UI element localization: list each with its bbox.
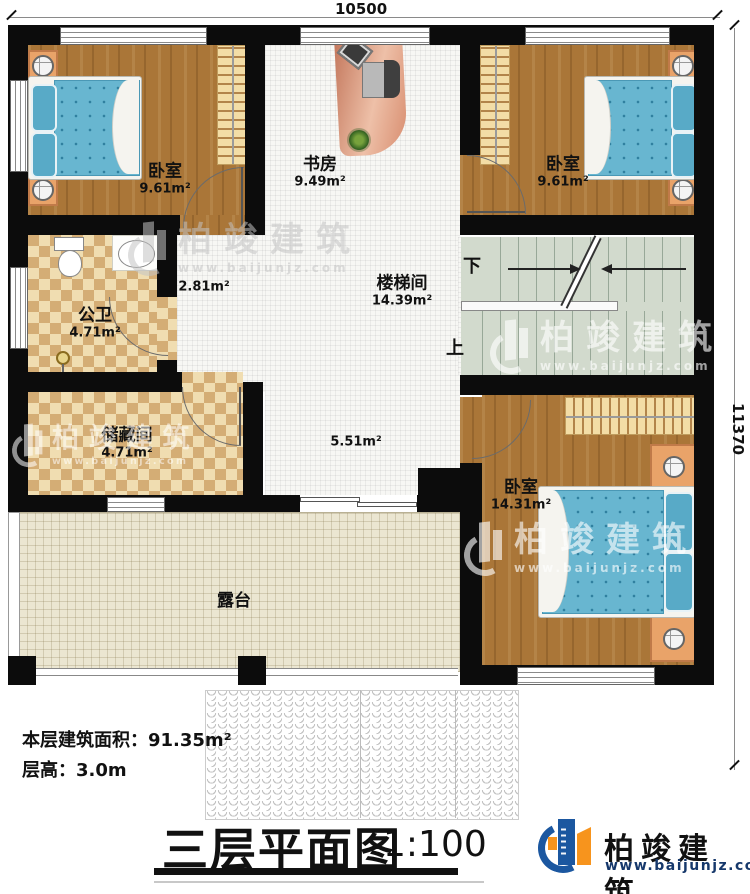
- room-label-hall: 5.51m²: [330, 434, 381, 449]
- dimension-tick: [712, 10, 723, 21]
- terrace-post: [238, 656, 266, 685]
- lamp-icon: [672, 179, 694, 201]
- room-label-bedroom-tr: 卧室 9.61m²: [537, 154, 588, 189]
- wall: [157, 235, 177, 297]
- lower-roof-tiles: [205, 690, 519, 820]
- floor-height-text: 层高：3.0m: [22, 756, 127, 782]
- window: [107, 497, 165, 512]
- window: [300, 27, 430, 45]
- pillow: [31, 84, 57, 132]
- nightstand: [650, 616, 698, 662]
- room-label-bedroom-tl: 卧室 9.61m²: [139, 161, 190, 196]
- room-name: 公卫: [69, 305, 120, 325]
- room-label-bedroom-br: 卧室 14.31m²: [491, 477, 551, 512]
- window: [525, 27, 670, 45]
- wall: [243, 495, 300, 512]
- room-label-stairwell: 楼梯间 14.39m²: [372, 273, 432, 308]
- room-label-storage: 储藏间 4.71m²: [101, 425, 152, 460]
- plant-icon: [349, 130, 369, 150]
- room-label-study: 书房 9.49m²: [294, 154, 345, 189]
- title-underline-thin: [154, 881, 484, 883]
- room-area: 9.61m²: [537, 174, 588, 189]
- stairs-down-label: 下: [463, 252, 481, 278]
- dimension-height: 11370: [729, 403, 747, 455]
- wall: [8, 372, 182, 392]
- stairs-direction-line: [508, 268, 572, 270]
- wall: [460, 45, 480, 155]
- room-name: 卧室: [537, 154, 588, 174]
- window: [517, 667, 655, 685]
- door-leaf: [241, 167, 243, 227]
- wardrobe: [565, 397, 696, 435]
- pillow: [31, 132, 57, 178]
- floor-area-text: 本层建筑面积：91.35m²: [22, 726, 232, 752]
- room-area: 14.39m²: [372, 293, 432, 308]
- room-area: 9.49m²: [294, 174, 345, 189]
- door-leaf: [239, 387, 241, 445]
- room-name: 楼梯间: [372, 273, 432, 293]
- roof-seam-line: [360, 690, 361, 818]
- sliding-door: [357, 502, 417, 507]
- lamp-icon: [32, 55, 54, 77]
- nightstand: [650, 444, 698, 490]
- window: [10, 267, 28, 349]
- room-label-bathroom: 公卫 4.71m²: [69, 305, 120, 340]
- room-area: 4.71m²: [69, 325, 120, 340]
- lamp-icon: [663, 628, 685, 650]
- floor-plan-canvas: 卧室 9.61m² 书房 9.49m² 卧室 9.61m² 公卫 4.71m² …: [0, 0, 750, 894]
- terrace-post: [8, 656, 36, 685]
- room-area: 5.51m²: [330, 434, 381, 449]
- window: [60, 27, 207, 45]
- stairs-arrow-icon: [570, 264, 581, 274]
- logo-building-icon: [548, 837, 557, 850]
- room-name: 书房: [294, 154, 345, 174]
- brand-url: www.baijunjz.com: [605, 858, 750, 874]
- pillow: [664, 552, 694, 612]
- lamp-icon: [663, 456, 685, 478]
- title-scale: 1:100: [383, 824, 487, 865]
- window: [10, 80, 28, 172]
- lamp-icon: [32, 179, 54, 201]
- stairs-arrow-icon: [601, 264, 612, 274]
- wall: [460, 375, 714, 395]
- closet: [480, 45, 510, 165]
- floor-drain-icon: [56, 351, 70, 365]
- room-area: 4.71m²: [101, 445, 152, 460]
- room-area: 9.61m²: [139, 181, 190, 196]
- closet: [217, 45, 247, 165]
- room-label-terrace: 露台: [217, 591, 251, 611]
- brand-logo-icon: [536, 815, 598, 879]
- stairs-up-label: 上: [446, 334, 464, 360]
- dimension-width: 10500: [335, 0, 387, 18]
- sink-icon: [118, 240, 155, 268]
- title-underline: [154, 868, 458, 875]
- dimension-line-right: [734, 28, 735, 770]
- lamp-icon: [672, 55, 694, 77]
- wall: [243, 382, 263, 512]
- terrace-parapet: [8, 512, 20, 660]
- room-name: 露台: [217, 591, 251, 611]
- logo-building-icon: [558, 819, 575, 865]
- wall: [460, 215, 714, 235]
- wall: [694, 25, 714, 685]
- room-name: 卧室: [491, 477, 551, 497]
- wall: [417, 495, 460, 512]
- bed-blanket-fold: [112, 80, 139, 174]
- dimension-tick: [6, 10, 17, 21]
- stairs-lower-flight: [465, 311, 694, 375]
- door-leaf: [467, 211, 525, 213]
- wall: [8, 215, 180, 235]
- room-label-corridor: 2.81m²: [178, 279, 229, 294]
- office-chair-back: [384, 60, 400, 98]
- room-name: 卧室: [139, 161, 190, 181]
- room-area: 14.31m²: [491, 497, 551, 512]
- wall: [245, 45, 265, 235]
- roof-seam-line: [455, 690, 456, 818]
- stairs-direction-line: [612, 268, 686, 270]
- toilet-icon: [54, 237, 84, 251]
- sliding-door: [300, 497, 360, 502]
- room-area: 2.81m²: [178, 279, 229, 294]
- toilet-icon: [58, 250, 82, 277]
- pillow: [664, 492, 694, 552]
- stairs-landing-rail: [461, 301, 618, 311]
- room-name: 储藏间: [101, 425, 152, 445]
